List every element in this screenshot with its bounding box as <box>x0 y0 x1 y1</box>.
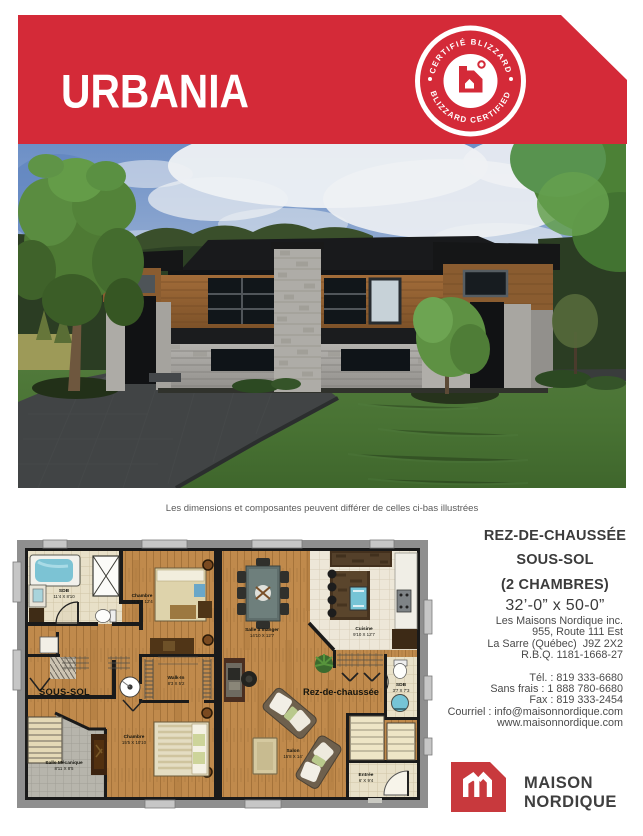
svg-text:3'7 X 7'3: 3'7 X 7'3 <box>393 688 410 693</box>
svg-text:11'8 X 12'4: 11'8 X 12'4 <box>131 599 153 604</box>
svg-text:6' X 9'4: 6' X 9'4 <box>359 778 374 783</box>
svg-text:9'10 X 12'7: 9'10 X 12'7 <box>353 632 375 637</box>
svg-text:Rez-de-chaussée: Rez-de-chaussée <box>303 687 379 697</box>
svg-text:SOUS-SOL: SOUS-SOL <box>39 687 90 697</box>
svg-text:15'5 X 10'10: 15'5 X 10'10 <box>122 740 147 745</box>
svg-text:11'4 X 8'10: 11'4 X 8'10 <box>53 594 75 599</box>
svg-text:14'10 X 12'7: 14'10 X 12'7 <box>250 633 275 638</box>
svg-text:8'11 X 8'5: 8'11 X 8'5 <box>55 766 74 771</box>
svg-text:15'8 X 14': 15'8 X 14' <box>283 754 302 759</box>
svg-text:8'3 X 5'2: 8'3 X 5'2 <box>168 681 185 686</box>
